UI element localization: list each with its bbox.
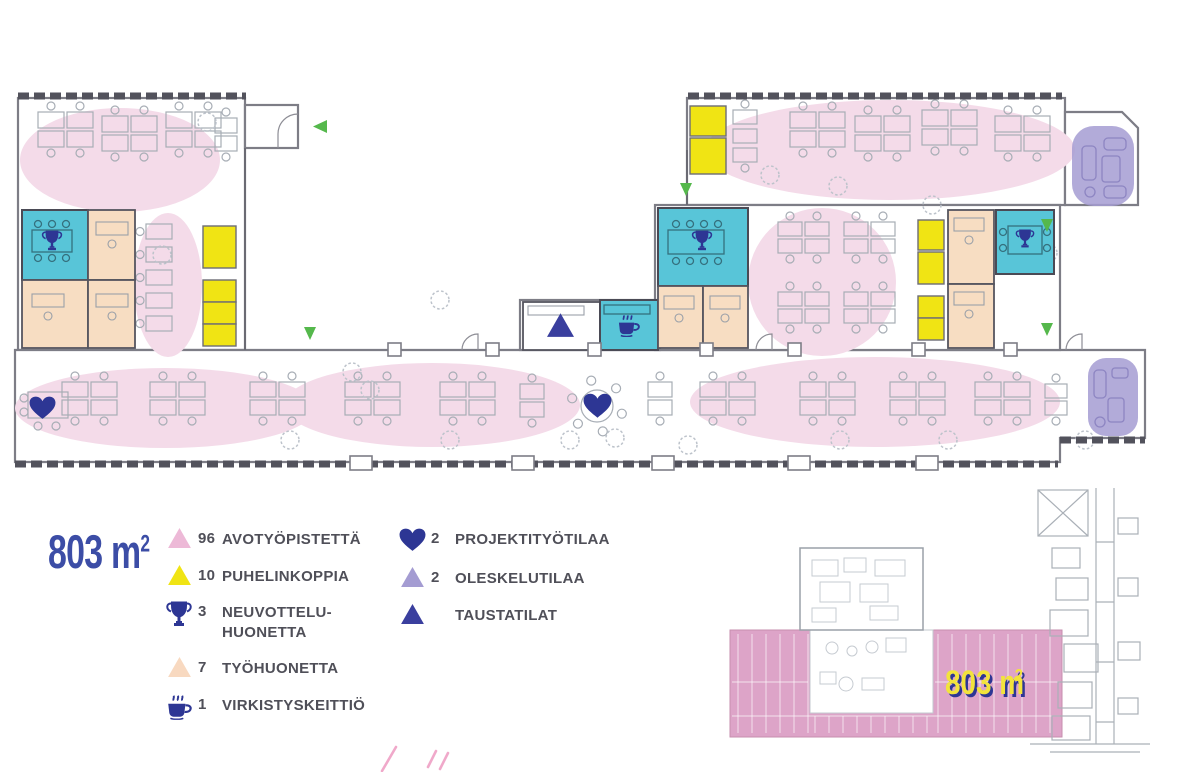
work-room <box>948 284 994 348</box>
work-room <box>948 210 994 284</box>
legend-item-support-spaces: TAUSTATILAT <box>393 606 610 626</box>
support-space-triangle-icon <box>393 604 431 624</box>
legend: 803 m2 96 AVOTYÖPISTETTÄ 10 PUHELINKOPPI… <box>48 518 708 768</box>
lounge-blob <box>1072 126 1134 206</box>
phone-booth <box>203 302 236 324</box>
work-room <box>658 286 703 348</box>
meeting-room-trophy-icon <box>160 601 198 628</box>
overview-area-label: 803 m 2 803 m 2 <box>945 663 1026 704</box>
legend-item-phone-booths: 10 PUHELINKOPPIA <box>160 567 365 587</box>
work-room <box>88 280 135 348</box>
legend-item-kitchen: 1 VIRKISTYSKEITTIÖ <box>160 696 365 720</box>
legend-column-2: 2 PROJEKTITYÖTILAA 2 OLESKELUTILAA TAUST… <box>393 530 610 642</box>
phone-booth <box>918 220 944 250</box>
legend-item-open-workstations: 96 AVOTYÖPISTETTÄ <box>160 530 365 550</box>
work-room <box>88 210 135 280</box>
entrance-arrow-icon <box>304 327 316 340</box>
legend-item-project-spaces: 2 PROJEKTITYÖTILAA <box>393 530 610 552</box>
project-space-heart-icon <box>393 528 431 552</box>
phone-booth <box>203 324 236 346</box>
phone-booth <box>918 296 944 318</box>
phone-booth <box>918 252 944 284</box>
work-room-triangle-icon <box>160 657 198 677</box>
entrance-arrow-icon <box>313 120 327 133</box>
overview-tower <box>800 548 923 630</box>
svg-text:803 m: 803 m <box>945 663 1024 701</box>
phone-booth <box>203 280 236 302</box>
phone-booth <box>690 138 726 174</box>
legend-item-meeting-rooms: 3 NEUVOTTELU- HUONETTA <box>160 603 365 642</box>
area-label: 803 m2 <box>48 524 149 579</box>
svg-text:2: 2 <box>1015 666 1023 686</box>
legend-column-1: 96 AVOTYÖPISTETTÄ 10 PUHELINKOPPIA 3 NEU… <box>160 530 365 737</box>
legend-item-lounge-spaces: 2 OLESKELUTILAA <box>393 569 610 589</box>
open-office-blob <box>705 100 1075 200</box>
floor-plan <box>0 0 1179 480</box>
lounge-triangle-icon <box>393 567 431 587</box>
kitchen-coffee-icon <box>160 694 198 720</box>
overview-site-map: 803 m 2 803 m 2 <box>720 482 1179 772</box>
phone-booth <box>690 106 726 136</box>
phone-booth <box>918 318 944 340</box>
phone-booth <box>203 226 236 268</box>
open-office-blob <box>20 108 220 212</box>
work-room <box>22 280 88 348</box>
phone-booth-triangle-icon <box>160 565 198 585</box>
legend-item-work-rooms: 7 TYÖHUONETTA <box>160 659 365 679</box>
work-room <box>703 286 748 348</box>
open-workstation-triangle-icon <box>160 528 198 548</box>
decorative-slashes <box>370 745 490 772</box>
